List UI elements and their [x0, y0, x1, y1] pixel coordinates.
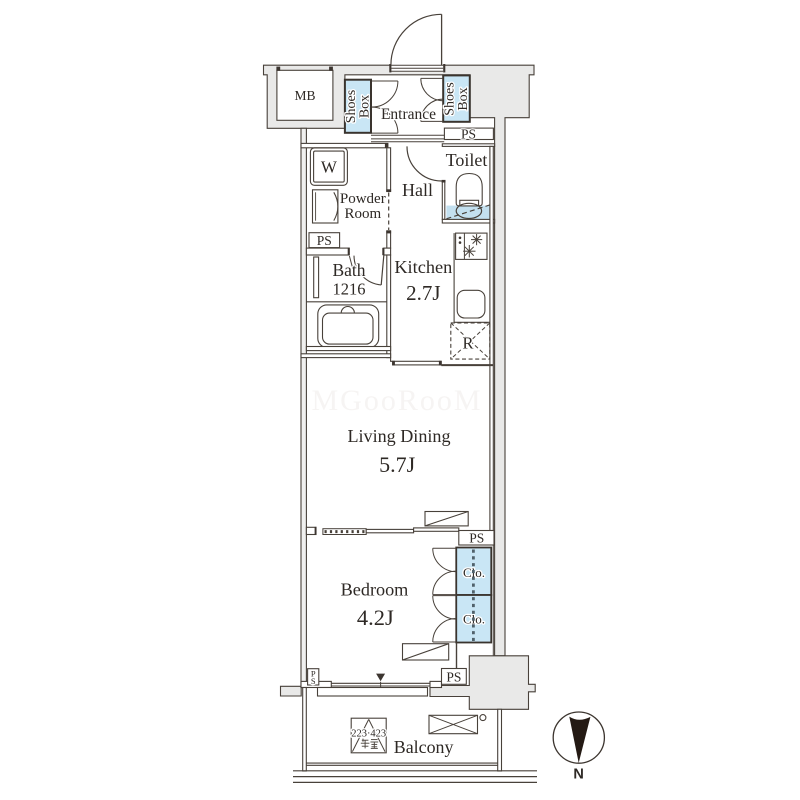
svg-text:4.2J: 4.2J [357, 605, 394, 630]
svg-text:PS: PS [317, 233, 332, 248]
svg-text:MB: MB [294, 88, 315, 103]
svg-text:S: S [311, 676, 316, 686]
svg-text:MGooRooM: MGooRooM [311, 384, 482, 417]
svg-text:Hall: Hall [402, 180, 433, 200]
svg-text:Balcony: Balcony [394, 737, 454, 757]
svg-text:Toilet: Toilet [446, 150, 488, 170]
svg-text:PS: PS [461, 127, 476, 142]
svg-text:Entrance: Entrance [381, 106, 436, 123]
svg-text:PS: PS [469, 531, 484, 546]
svg-text:223·423: 223·423 [351, 729, 386, 740]
svg-text:5.7J: 5.7J [379, 452, 416, 477]
svg-text:Bedroom: Bedroom [341, 580, 409, 600]
svg-text:Living Dining: Living Dining [347, 426, 450, 446]
svg-text:R: R [462, 334, 473, 353]
svg-text:PowderRoom: PowderRoom [340, 191, 386, 222]
svg-text:PS: PS [446, 669, 461, 684]
svg-text:W: W [321, 158, 338, 177]
svg-text:Bath1216: Bath1216 [332, 260, 365, 298]
svg-text:N: N [573, 767, 583, 783]
svg-text:2.7J: 2.7J [406, 281, 440, 305]
svg-text:Kitchen: Kitchen [394, 257, 452, 277]
